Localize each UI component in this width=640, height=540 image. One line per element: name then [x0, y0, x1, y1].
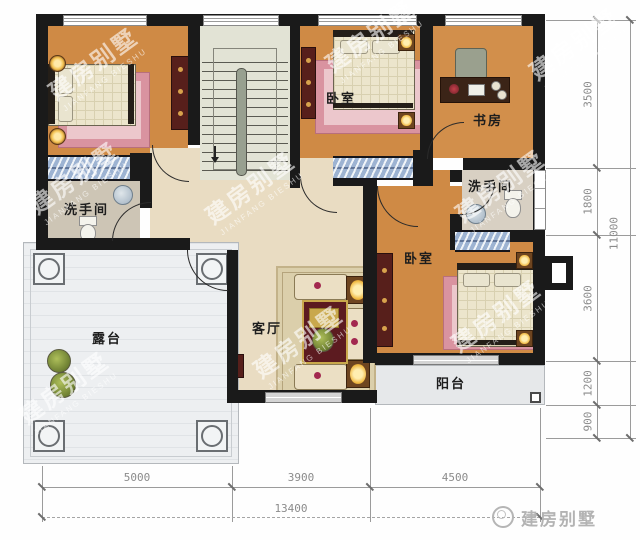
- sink: [113, 185, 133, 205]
- wall-lamp: [49, 55, 66, 72]
- living-carpet: [276, 266, 376, 398]
- pillow: [372, 40, 400, 54]
- label-study: 书房: [473, 110, 503, 129]
- dim-right-5: 900: [582, 392, 595, 452]
- label-bathroom-right: 洗手间: [468, 176, 513, 195]
- room-bedroom-right-patch: [433, 170, 450, 186]
- stair-rail: [236, 68, 247, 176]
- cushion: [314, 282, 321, 289]
- wall-lamp: [49, 128, 66, 145]
- dim-bottom-2: 3900: [271, 471, 331, 484]
- wall: [290, 26, 300, 188]
- wall-lamp: [516, 330, 533, 347]
- pillow: [463, 273, 490, 287]
- logo: 建房别墅: [492, 504, 632, 530]
- window: [318, 15, 417, 26]
- dim-right-2: 1800: [582, 172, 595, 232]
- wall-lamp: [398, 112, 415, 129]
- terrace-column: [33, 420, 65, 452]
- cushion: [351, 338, 358, 345]
- bay-window: [455, 230, 510, 252]
- wall: [130, 153, 152, 181]
- toilet-bowl: [505, 198, 521, 218]
- sofa-top: [294, 274, 348, 300]
- dim-bottom-1: 5000: [107, 471, 167, 484]
- wall: [227, 250, 238, 403]
- dimension-line-right: [597, 20, 598, 438]
- extension-line: [42, 466, 43, 522]
- window: [413, 355, 499, 365]
- wall-lamp: [516, 252, 533, 269]
- extension-line: [546, 168, 636, 169]
- extension-line: [232, 466, 233, 522]
- pillow: [58, 96, 73, 122]
- extension-line: [370, 408, 371, 522]
- label-bedroom-right: 卧室: [404, 248, 434, 267]
- pillow: [494, 273, 521, 287]
- dimension-line-bottom-total: [42, 517, 540, 518]
- office-chair: [455, 48, 487, 80]
- wardrobe: [376, 253, 393, 347]
- pillow: [58, 68, 73, 94]
- extension-line: [546, 235, 636, 236]
- logo-icon: [492, 506, 514, 528]
- stair-arrow-head: [211, 157, 219, 163]
- extension-line: [546, 20, 636, 21]
- desk-book: [468, 84, 485, 96]
- wall: [363, 176, 377, 363]
- window: [445, 15, 522, 26]
- bay-window: [333, 156, 413, 180]
- balcony-corner-post: [530, 392, 541, 403]
- potted-plant: [47, 349, 71, 373]
- potted-plant: [50, 372, 76, 398]
- bed-headboard: [48, 64, 55, 124]
- coffee-table: [309, 308, 339, 328]
- dim-right-total: 11000: [608, 204, 621, 264]
- dim-bottom-total: 13400: [251, 502, 331, 515]
- window: [534, 170, 546, 230]
- label-living-room: 客厅: [252, 318, 282, 337]
- dim-right-1: 3500: [582, 65, 595, 125]
- wardrobe: [301, 47, 316, 119]
- label-terrace: 露台: [92, 328, 122, 347]
- chimney-flue: [545, 256, 573, 290]
- wall: [188, 26, 200, 145]
- logo-text: 建房别墅: [521, 505, 597, 530]
- table-plant: [312, 328, 334, 352]
- wall: [450, 170, 462, 182]
- wall: [510, 230, 533, 242]
- terrace-column: [33, 253, 65, 285]
- window: [63, 15, 147, 26]
- window: [265, 392, 342, 403]
- label-bedroom-top: 卧室: [326, 88, 356, 107]
- dim-bottom-3: 4500: [425, 471, 485, 484]
- bay-window: [48, 155, 130, 181]
- dim-right-3: 3600: [582, 269, 595, 329]
- label-bathroom-left: 洗手间: [64, 199, 109, 218]
- floor-lamp: [346, 360, 370, 388]
- cushion: [351, 320, 358, 327]
- dimension-line-right-total: [630, 20, 631, 438]
- sofa-bottom: [294, 364, 348, 390]
- label-balcony: 阳台: [436, 373, 466, 392]
- wall: [463, 158, 533, 170]
- wall: [420, 26, 433, 156]
- pillow: [340, 40, 368, 54]
- terrace-column: [196, 420, 228, 452]
- wall-lamp: [398, 34, 415, 51]
- cushion: [314, 372, 321, 379]
- desk-plant: [449, 84, 459, 94]
- desk-stool: [497, 90, 507, 100]
- dimension-line-bottom: [42, 487, 540, 488]
- window: [203, 15, 279, 26]
- floor-plan: 卧室 书房 洗手间 洗手间 卧室 客厅 阳台 露台 5000 3900 4500…: [0, 0, 640, 540]
- wall: [36, 14, 48, 250]
- bed-foot: [128, 64, 134, 124]
